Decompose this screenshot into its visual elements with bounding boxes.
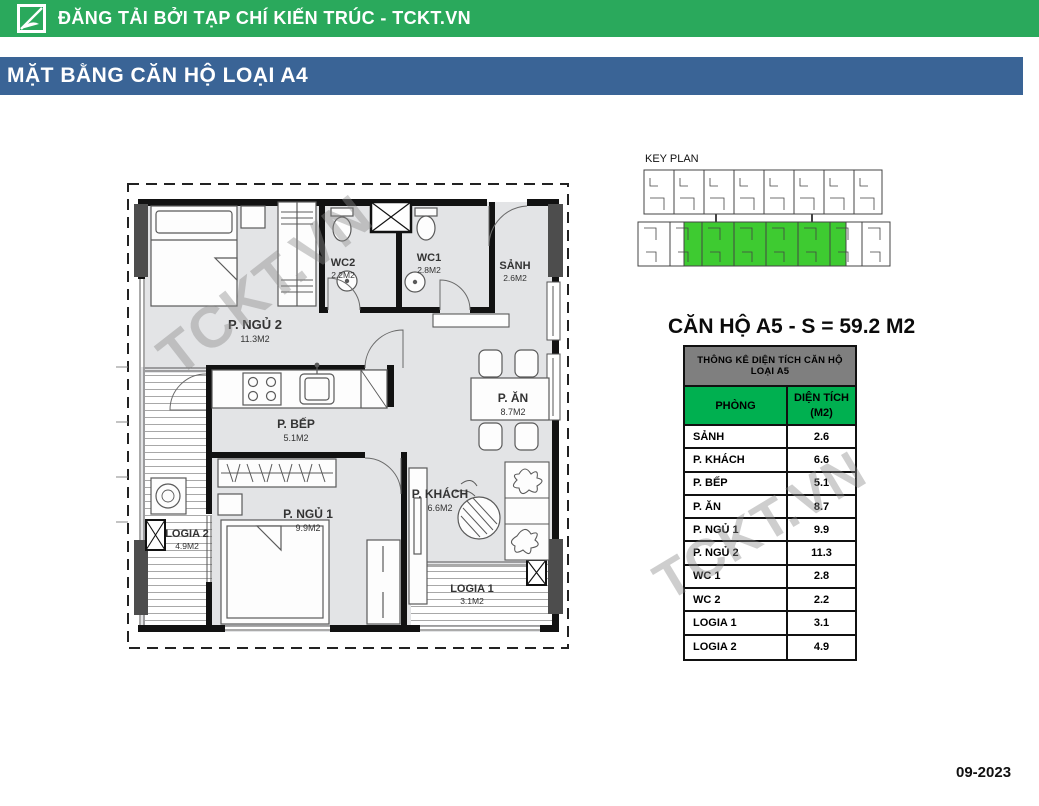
- row-area: 11.3: [788, 542, 855, 563]
- row-room: WC 2: [685, 589, 788, 610]
- room-area-ngu1: 9.9M2: [295, 523, 320, 533]
- room-label-logia1: LOGIA 1: [450, 583, 494, 595]
- table-row: P. ĂN8.7: [685, 496, 855, 519]
- floor-plan: P. NGỦ 2 11.3M2 WC2 2.2M2 WC1 2.8M2 SẢNH…: [115, 162, 590, 662]
- row-area: 2.8: [788, 566, 855, 587]
- room-label-wc2: WC2: [331, 257, 355, 269]
- table-row: SẢNH2.6: [685, 426, 855, 449]
- row-area: 8.7: [788, 496, 855, 517]
- room-area-khach: 6.6M2: [427, 503, 452, 513]
- hanger-rack: [218, 459, 336, 487]
- area-table: THÔNG KÊ DIỆN TÍCH CĂN HỘ LOẠI A5 PHÒNG …: [683, 345, 857, 661]
- table-row: P. BẾP5.1: [685, 473, 855, 496]
- section-title: MẶT BẰNG CĂN HỘ LOẠI A4: [7, 64, 308, 88]
- room-area-wc1: 2.8M2: [417, 265, 441, 275]
- single-bed: [221, 520, 329, 624]
- room-label-sanh: SẢNH: [499, 259, 530, 272]
- tckt-logo-icon: [17, 4, 46, 33]
- publisher-text: ĐĂNG TẢI BỞI TẠP CHÍ KIẾN TRÚC - TCKT.VN: [58, 8, 471, 29]
- table-row: WC 12.8: [685, 566, 855, 589]
- row-area: 6.6: [788, 449, 855, 470]
- room-label-ngu1: P. NGỦ 1: [283, 506, 333, 521]
- col-header-area-line2: (M2): [810, 406, 833, 420]
- room-area-bep: 5.1M2: [283, 433, 308, 443]
- row-room: P. BẾP: [685, 473, 788, 494]
- row-room: SẢNH: [685, 426, 788, 447]
- coffee-table: [458, 497, 500, 539]
- room-area-logia1: 3.1M2: [460, 596, 484, 606]
- room-label-an: P. ĂN: [498, 390, 528, 405]
- stove-icon: [243, 373, 281, 405]
- room-label-ngu2: P. NGỦ 2: [228, 317, 282, 332]
- col-header-area: DIỆN TÍCH (M2): [788, 387, 855, 424]
- tv-icon: [414, 498, 421, 554]
- table-row: P. KHÁCH6.6: [685, 449, 855, 472]
- row-room: LOGIA 1: [685, 612, 788, 633]
- room-label-khach: P. KHÁCH: [412, 486, 468, 501]
- area-table-header: PHÒNG DIỆN TÍCH (M2): [685, 387, 855, 426]
- room-area-sanh: 2.6M2: [503, 273, 527, 283]
- room-label-wc1: WC1: [417, 252, 441, 264]
- room-area-logia2: 4.9M2: [175, 541, 199, 551]
- row-room: P. KHÁCH: [685, 449, 788, 470]
- room-label-bep: P. BẾP: [277, 416, 315, 431]
- table-row: P. NGỦ 19.9: [685, 519, 855, 542]
- room-area-wc2: 2.2M2: [331, 270, 355, 280]
- row-room: P. NGỦ 1: [685, 519, 788, 540]
- row-room: LOGIA 2: [685, 636, 788, 659]
- wardrobe-2: [278, 202, 316, 306]
- row-room: P. ĂN: [685, 496, 788, 517]
- shaft-box: [371, 202, 411, 232]
- room-area-ngu2: 11.3M2: [240, 334, 269, 344]
- keyplan-drawing: [636, 168, 892, 270]
- table-row: LOGIA 24.9: [685, 636, 855, 659]
- publisher-bar: ĐĂNG TẢI BỞI TẠP CHÍ KIẾN TRÚC - TCKT.VN: [0, 0, 1039, 37]
- row-area: 3.1: [788, 612, 855, 633]
- row-area: 9.9: [788, 519, 855, 540]
- row-area: 2.2: [788, 589, 855, 610]
- table-row: P. NGỦ 211.3: [685, 542, 855, 565]
- page: ĐĂNG TẢI BỞI TẠP CHÍ KIẾN TRÚC - TCKT.VN…: [0, 0, 1039, 806]
- row-area: 5.1: [788, 473, 855, 494]
- kitchen-counter: [212, 363, 387, 408]
- nightstand-2: [241, 206, 265, 228]
- dimension-ticks: [116, 367, 128, 522]
- room-label-logia2: LOGIA 2: [165, 528, 209, 540]
- table-row: WC 22.2: [685, 589, 855, 612]
- table-row: LOGIA 13.1: [685, 612, 855, 635]
- col-header-room: PHÒNG: [685, 387, 788, 424]
- apartment-title: CĂN HỘ A5 - S = 59.2 M2: [668, 315, 915, 339]
- nightstand-1: [218, 494, 242, 515]
- hall-cabinet: [433, 314, 509, 327]
- footer-date: 09-2023: [956, 764, 1011, 781]
- keyplan-label: KEY PLAN: [645, 153, 699, 165]
- washing-machine-icon: [151, 478, 186, 514]
- row-area: 4.9: [788, 636, 855, 659]
- double-bed: [151, 206, 237, 306]
- keyplan-highlight: [684, 222, 846, 266]
- row-room: WC 1: [685, 566, 788, 587]
- wardrobe-1: [367, 540, 400, 624]
- area-table-title: THÔNG KÊ DIỆN TÍCH CĂN HỘ LOẠI A5: [685, 347, 855, 387]
- col-header-area-line1: DIỆN TÍCH: [794, 391, 849, 405]
- row-room: P. NGỦ 2: [685, 542, 788, 563]
- section-title-bar: MẶT BẰNG CĂN HỘ LOẠI A4: [0, 57, 1023, 95]
- row-area: 2.6: [788, 426, 855, 447]
- room-area-an: 8.7M2: [500, 407, 525, 417]
